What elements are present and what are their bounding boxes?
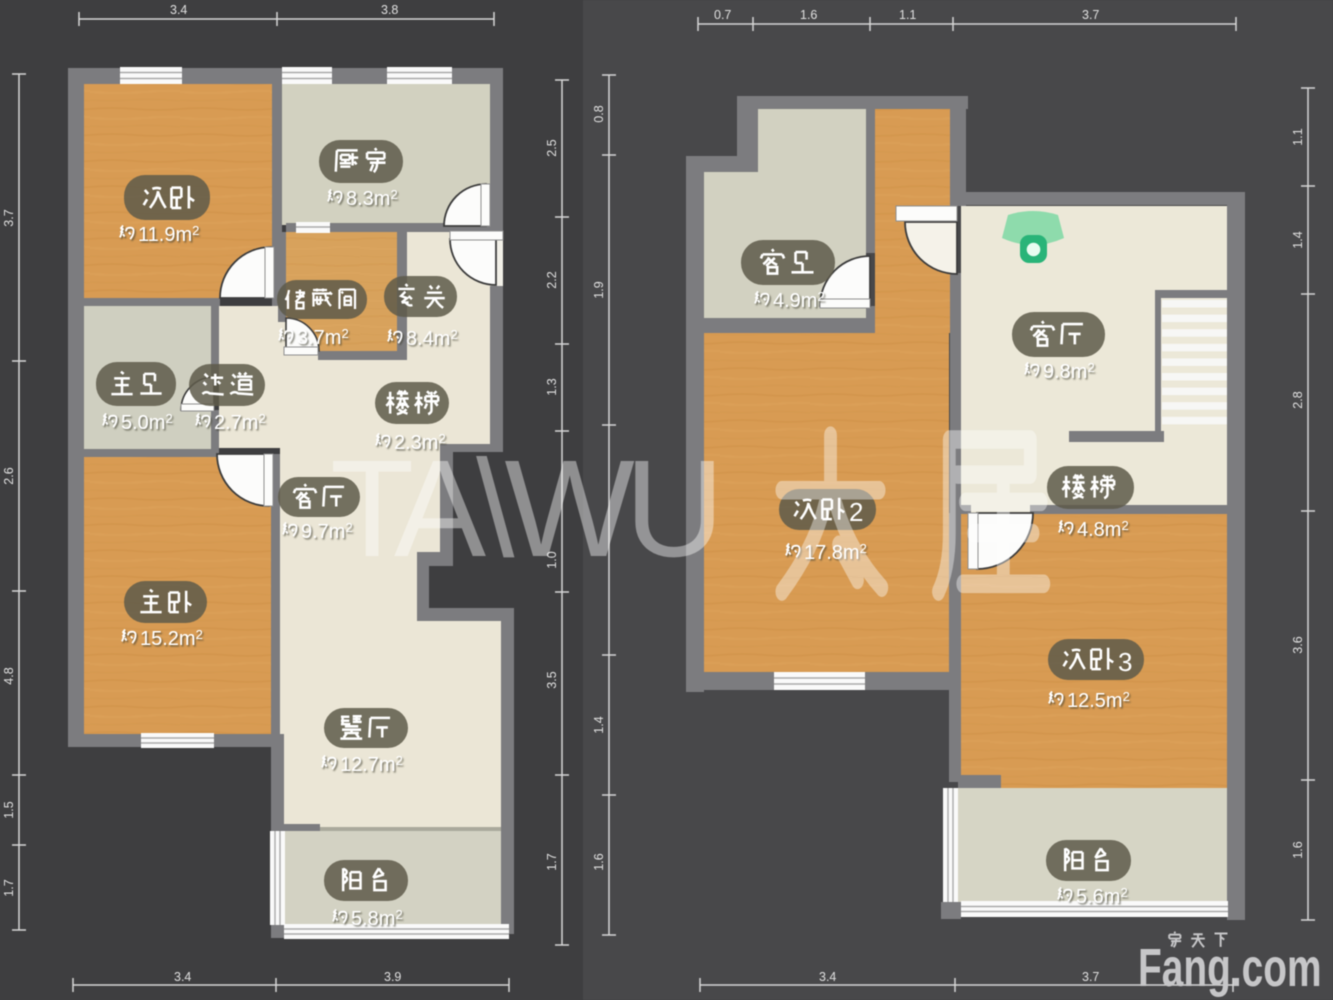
- svg-text:3.6: 3.6: [1291, 636, 1305, 653]
- svg-text:5.8m2: 5.8m2: [351, 907, 403, 930]
- svg-text:3.7: 3.7: [1082, 8, 1099, 22]
- svg-text:1.1: 1.1: [899, 8, 916, 22]
- svg-text:2: 2: [849, 497, 863, 527]
- svg-text:3.7: 3.7: [2, 209, 16, 226]
- svg-text:4.8: 4.8: [2, 667, 16, 684]
- svg-text:1.9: 1.9: [592, 281, 606, 298]
- svg-text:1.4: 1.4: [1291, 231, 1305, 248]
- svg-text:3: 3: [1118, 647, 1132, 677]
- svg-text:2.7m2: 2.7m2: [214, 411, 266, 434]
- svg-text:5.6m2: 5.6m2: [1076, 885, 1128, 908]
- svg-text:3.8: 3.8: [381, 3, 398, 17]
- svg-text:3.7m2: 3.7m2: [297, 326, 349, 349]
- svg-text:3.7: 3.7: [1082, 970, 1099, 984]
- svg-text:2.5: 2.5: [545, 139, 559, 156]
- svg-text:2.2: 2.2: [545, 271, 559, 288]
- svg-text:15.2m2: 15.2m2: [140, 627, 203, 650]
- svg-text:12.5m2: 12.5m2: [1067, 689, 1130, 712]
- svg-text:1.7: 1.7: [545, 853, 559, 870]
- svg-text:3.4: 3.4: [819, 970, 836, 984]
- svg-text:3.4: 3.4: [174, 970, 191, 984]
- svg-text:3.9: 3.9: [384, 970, 401, 984]
- svg-text:1.6: 1.6: [1291, 841, 1305, 858]
- svg-text:1.3: 1.3: [545, 378, 559, 395]
- svg-text:1.7: 1.7: [2, 879, 16, 896]
- svg-text:1.5: 1.5: [2, 801, 16, 818]
- svg-text:0.7: 0.7: [714, 8, 731, 22]
- svg-text:1.6: 1.6: [800, 8, 817, 22]
- svg-text:3.5: 3.5: [545, 671, 559, 688]
- svg-text:9.8m2: 9.8m2: [1043, 360, 1095, 383]
- svg-text:8.4m2: 8.4m2: [406, 327, 458, 350]
- svg-text:4.9m2: 4.9m2: [773, 289, 825, 312]
- svg-text:4.8m2: 4.8m2: [1077, 518, 1129, 541]
- svg-text:8.3m2: 8.3m2: [346, 187, 398, 210]
- svg-text:3.4: 3.4: [170, 3, 187, 17]
- svg-text:2.8: 2.8: [1291, 391, 1305, 408]
- svg-text:2.6: 2.6: [2, 467, 16, 484]
- svg-text:TA\WU: TA\WU: [330, 432, 715, 586]
- svg-text:12.7m2: 12.7m2: [340, 753, 403, 776]
- svg-text:1.4: 1.4: [592, 716, 606, 733]
- svg-text:1.6: 1.6: [592, 853, 606, 870]
- svg-text:5.0m2: 5.0m2: [121, 411, 173, 434]
- svg-text:1.1: 1.1: [1291, 128, 1305, 145]
- svg-text:0.8: 0.8: [592, 105, 606, 122]
- svg-text:11.9m2: 11.9m2: [138, 223, 199, 246]
- svg-text:Fang.com: Fang.com: [1138, 937, 1322, 998]
